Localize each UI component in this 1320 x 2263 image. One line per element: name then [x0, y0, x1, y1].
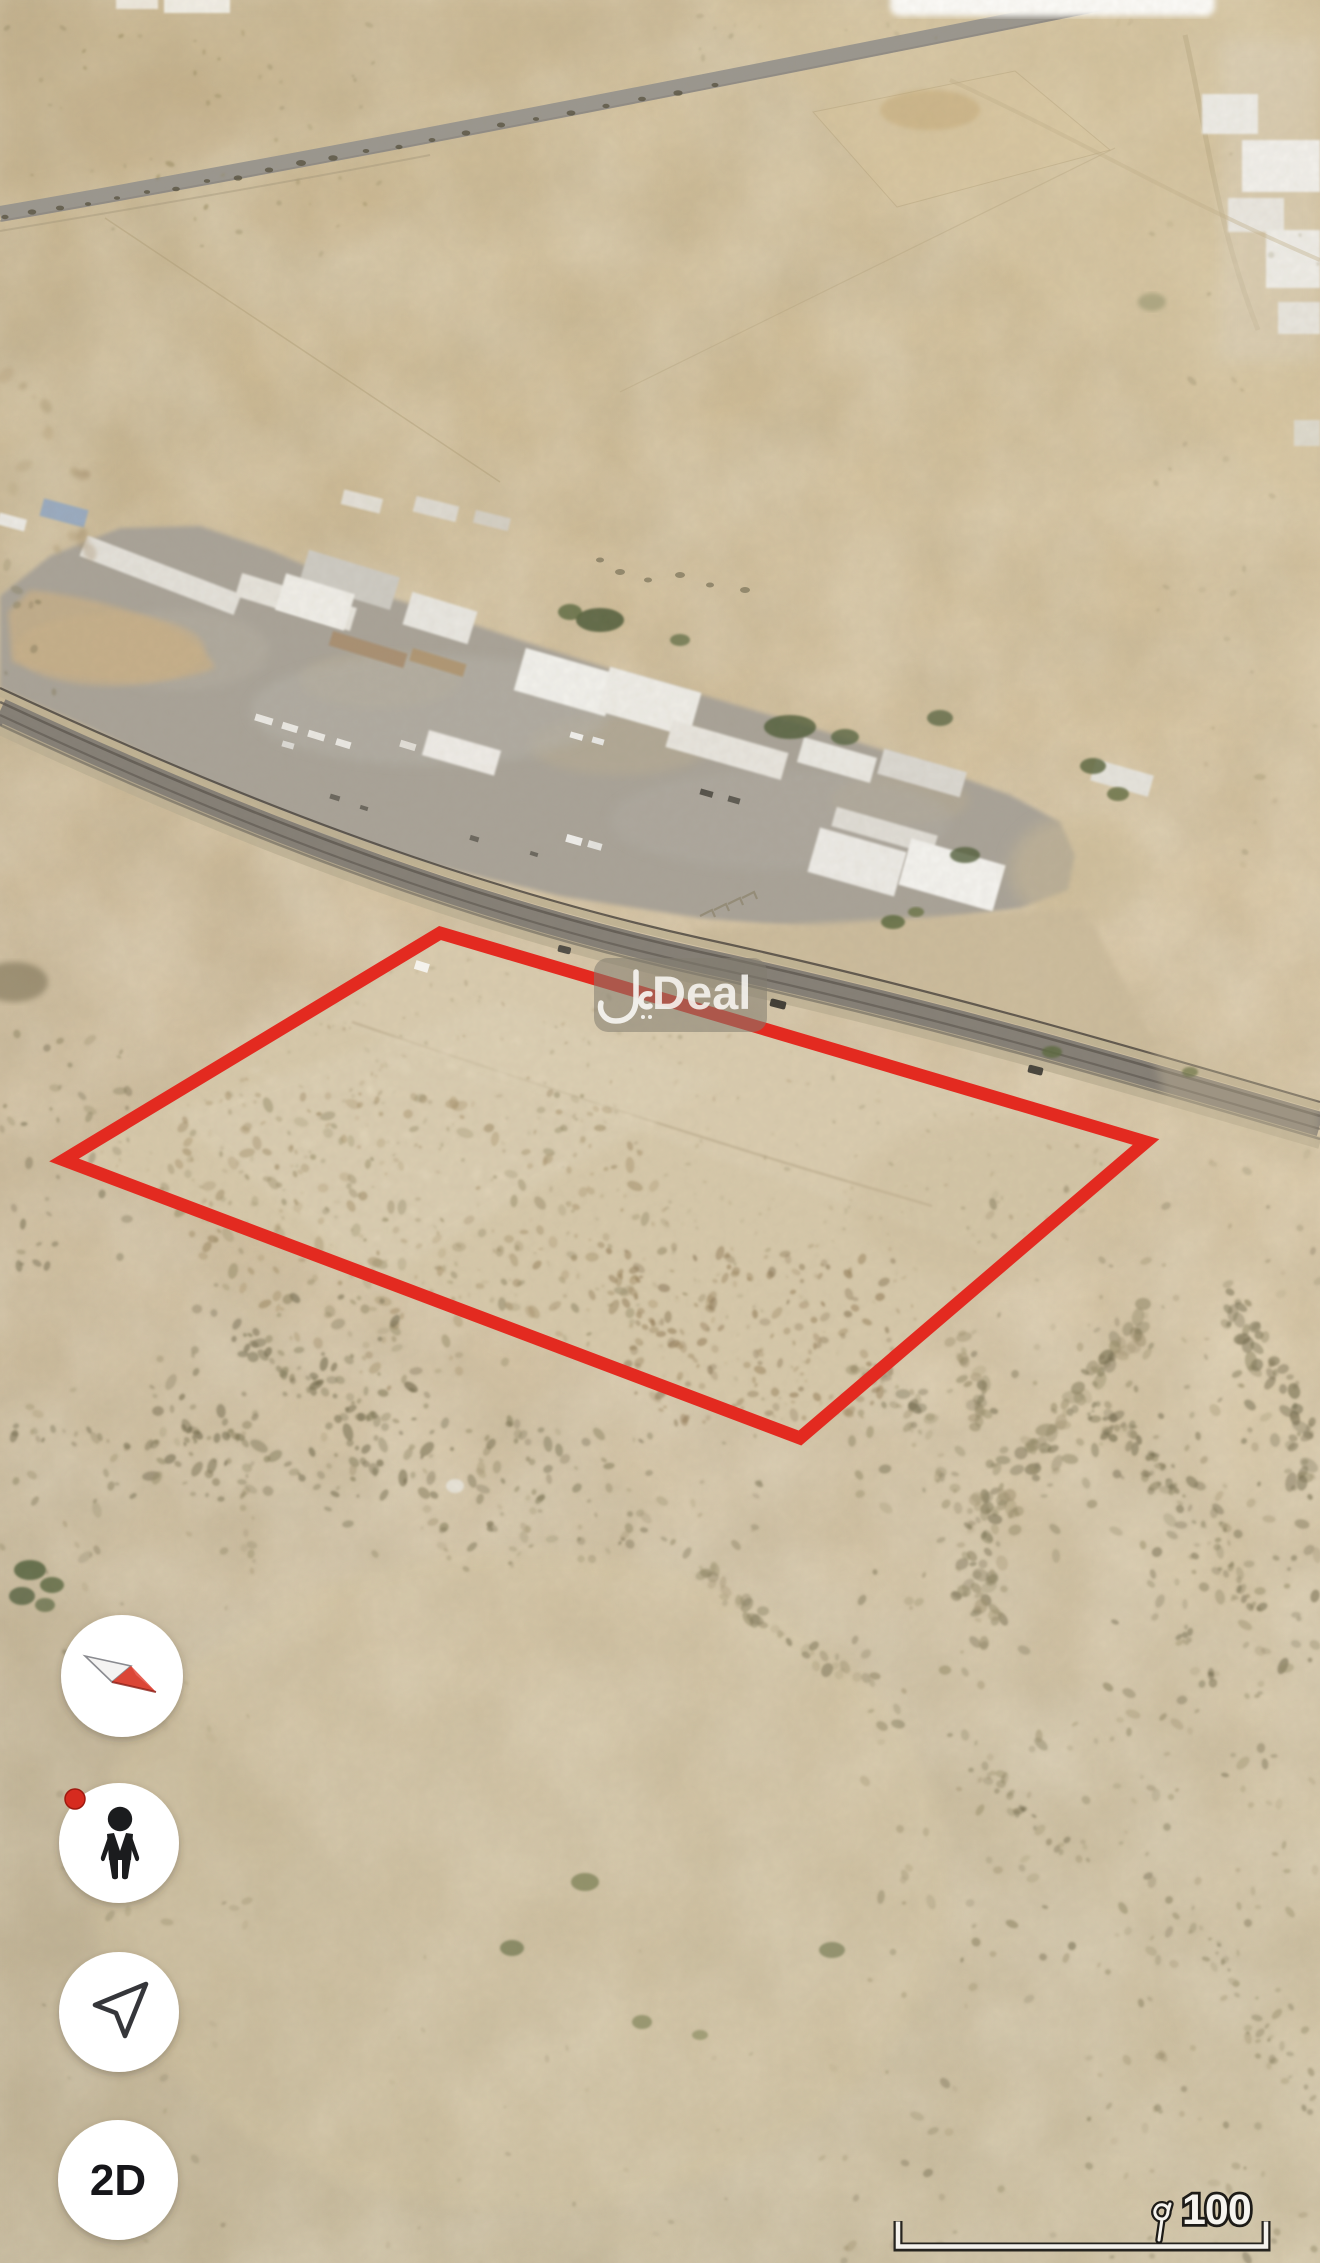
svg-text:2D: 2D [90, 2156, 146, 2205]
svg-text:Deal: Deal [652, 966, 751, 1019]
svg-text:100: 100 [1182, 2186, 1251, 2234]
